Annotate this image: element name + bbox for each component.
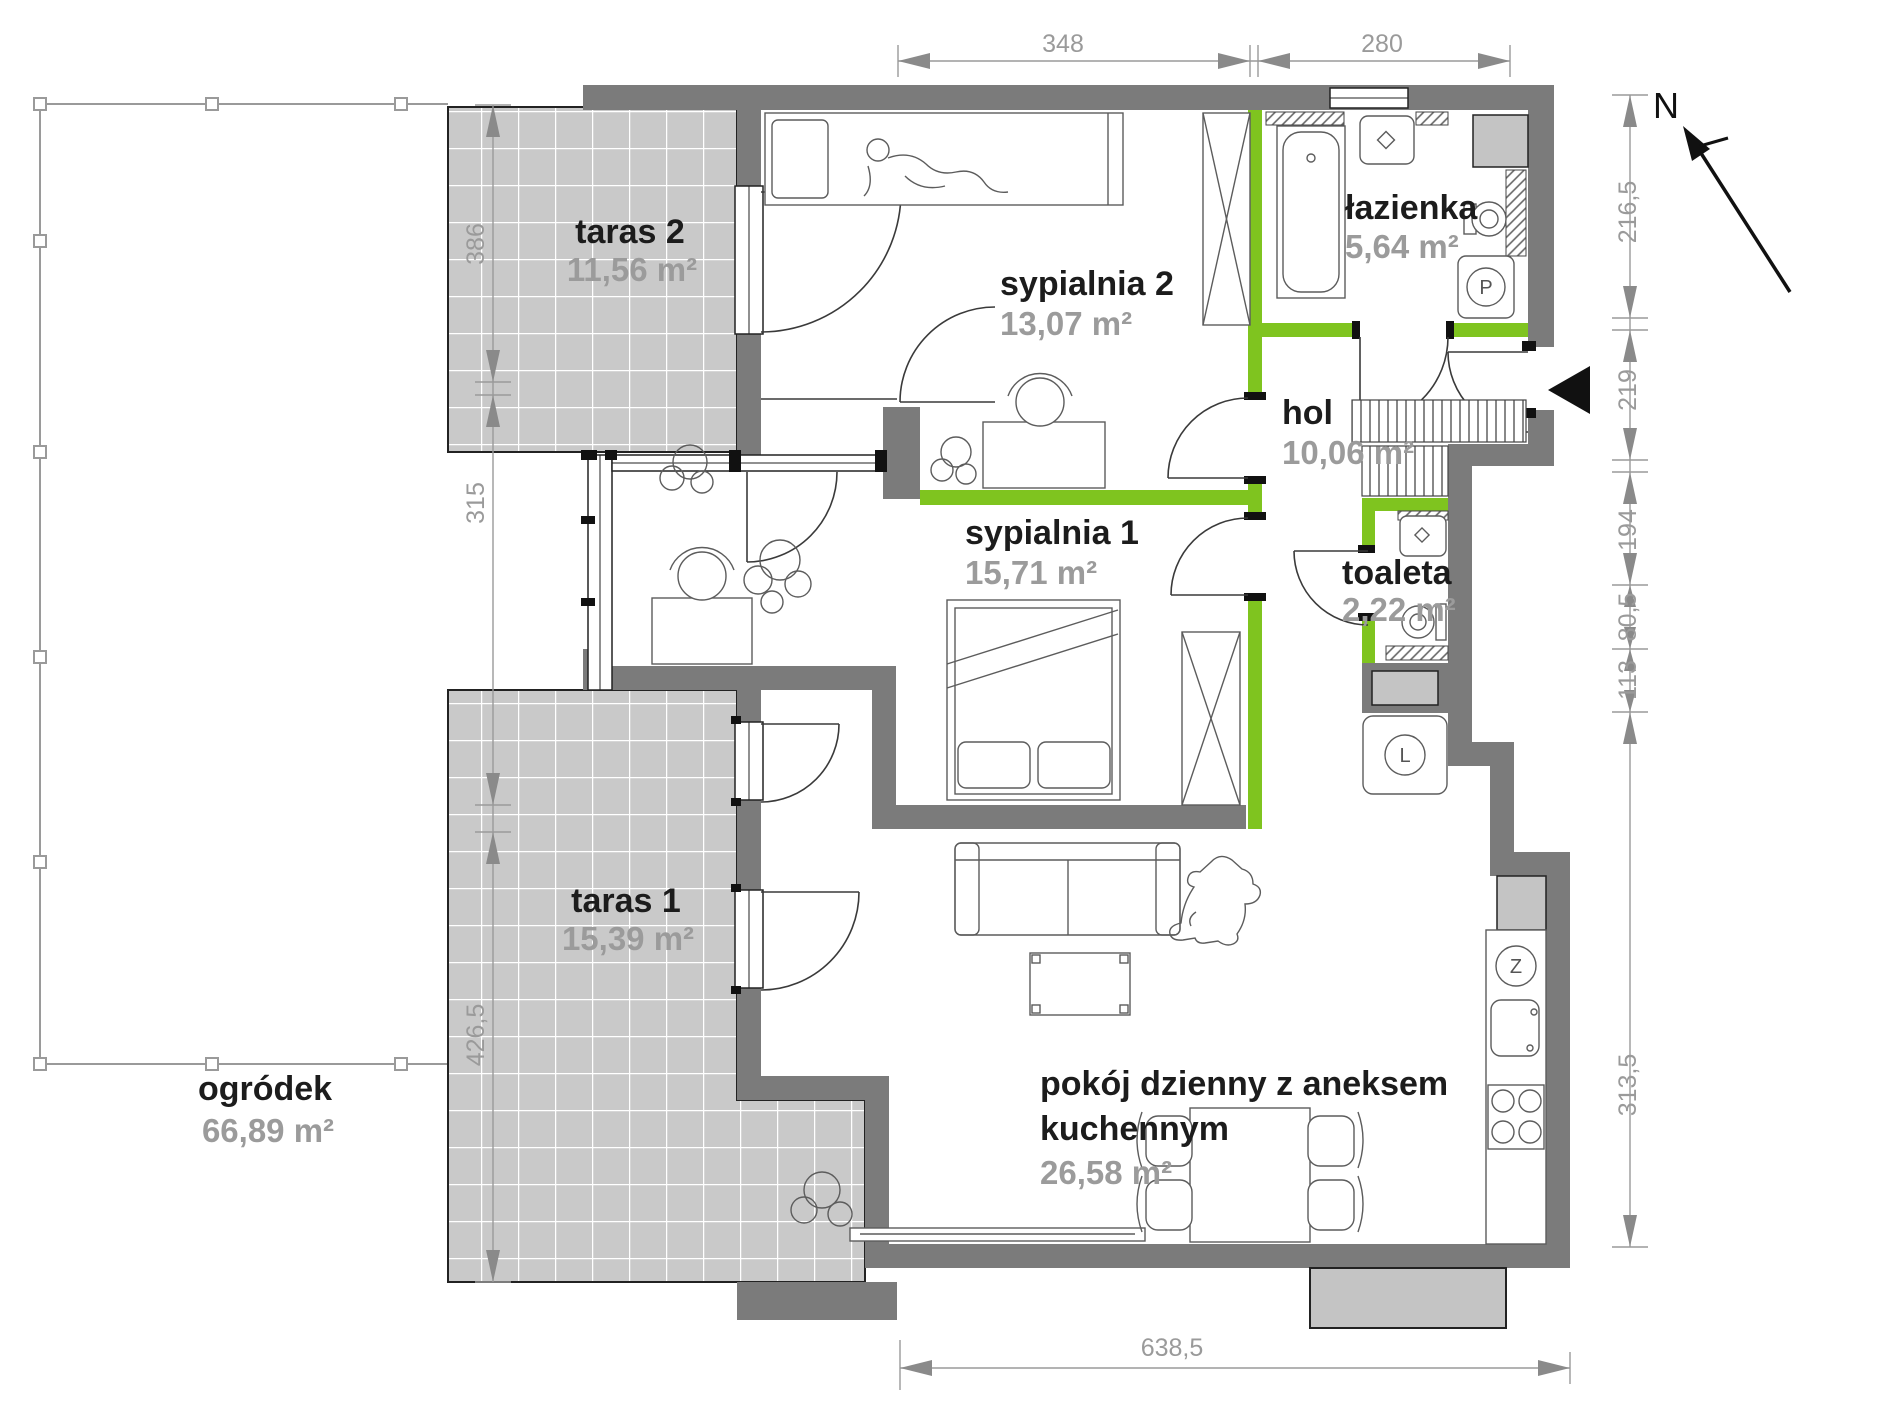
dim-bottom-638: 638,5: [1141, 1334, 1204, 1362]
washer-label: P: [1479, 277, 1492, 299]
shaft-bathroom-corner: [1473, 115, 1528, 167]
dishwasher-label: Z: [1510, 956, 1522, 978]
dim-right-313: 313,5: [1614, 1054, 1642, 1117]
dim-top-280: 280: [1361, 30, 1403, 58]
tv-console: [850, 1228, 1145, 1241]
bed-double-bedroom1: [947, 600, 1120, 800]
fence-posts: [34, 98, 407, 1070]
label-living-area: 26,58 m²: [1040, 1154, 1172, 1191]
exterior-pad: [1310, 1268, 1506, 1328]
washing-machine: P: [1458, 256, 1514, 318]
living-terrace-door1-swing: [761, 724, 839, 802]
entrance-arrow-icon: [1548, 366, 1590, 414]
label-toilet-area: 2,22 m²: [1342, 591, 1456, 628]
label-bedroom1-area: 15,71 m²: [965, 554, 1097, 591]
living-terrace-door2-swing: [761, 892, 859, 990]
desk-bedroom2: [983, 373, 1105, 488]
dim-right-194: 194: [1614, 509, 1642, 551]
bedroom1-terrace-door-swing: [747, 472, 837, 562]
label-bedroom2-area: 13,07 m²: [1000, 305, 1132, 342]
dim-right-113: 113: [1614, 660, 1642, 700]
kitchen-counter: Z: [1486, 930, 1546, 1244]
toilet-bottom-wall-hatch: [1386, 646, 1448, 660]
coffee-table: [1030, 953, 1130, 1015]
label-garden-name: ogródek: [198, 1070, 332, 1108]
fridge: L: [1363, 716, 1447, 794]
shaft-toilet: [1372, 671, 1438, 705]
label-terrace1-name: taras 1: [571, 882, 681, 920]
washbasin-toilet: [1400, 516, 1446, 556]
terrace-1-floor: [448, 690, 865, 1282]
desk-bedroom1: [652, 547, 752, 664]
label-bedroom2-name: sypialnia 2: [1000, 265, 1174, 303]
label-living-name-line1: pokój dzienny z aneksem: [1040, 1065, 1448, 1103]
dim-left-386: 386: [462, 223, 490, 265]
wardrobe-bedroom2: [1203, 113, 1250, 325]
dim-right-219: 219: [1614, 369, 1642, 411]
dim-right-216: 216,5: [1614, 181, 1642, 244]
north-arrow: N: [1653, 85, 1790, 292]
stove: [1488, 1085, 1544, 1149]
plant-bedroom2: [931, 437, 976, 484]
dim-left-315: 315: [462, 482, 490, 524]
plant-bedroom1-b: [744, 540, 811, 613]
label-bathroom-area: 5,64 m²: [1345, 228, 1459, 265]
fridge-label: L: [1399, 745, 1410, 767]
north-label: N: [1653, 85, 1679, 126]
dim-top-348: 348: [1042, 30, 1084, 58]
label-bathroom-name: łazienka: [1345, 189, 1478, 227]
garden-fence: [34, 98, 448, 1070]
label-terrace1-area: 15,39 m²: [562, 920, 694, 957]
dog-icon: [1170, 856, 1261, 945]
label-garden-area: 66,89 m²: [202, 1112, 334, 1149]
sofa: [955, 843, 1180, 935]
washbasin-bathroom: [1360, 116, 1414, 164]
label-bedroom1-name: sypialnia 1: [965, 514, 1139, 552]
label-terrace2-area: 11,56 m²: [567, 251, 697, 288]
bathroom-tub-wall-hatch: [1266, 112, 1344, 125]
dim-left-426: 426,5: [462, 1004, 490, 1067]
label-terrace2-name: taras 2: [575, 213, 685, 251]
label-toilet-name: toaleta: [1342, 554, 1453, 592]
bedroom2-hall-door-swing: [1168, 398, 1248, 478]
wardrobe-bedroom1: [1182, 632, 1240, 805]
bedroom2-terrace-door-swing: [761, 192, 901, 332]
label-hall-area: 10,06 m²: [1282, 434, 1414, 471]
bedroom2-inner-door-swing: [900, 307, 995, 402]
floor-plan-drawing: P: [0, 0, 1900, 1418]
dim-right-80: 80,5: [1614, 593, 1642, 642]
bathtub: [1277, 126, 1345, 298]
floor-plan-page: P: [0, 0, 1900, 1418]
bathroom-basin-wall-hatch: [1416, 112, 1448, 125]
label-hall-name: hol: [1282, 394, 1333, 432]
bedroom1-hall-door-swing: [1171, 518, 1248, 595]
label-living-name-line2: kuchennym: [1040, 1110, 1229, 1148]
shaft-kitchen: [1497, 876, 1546, 930]
bathroom-wall-panel-hatch: [1506, 170, 1526, 256]
bed-single-bedroom2: [765, 113, 1123, 205]
